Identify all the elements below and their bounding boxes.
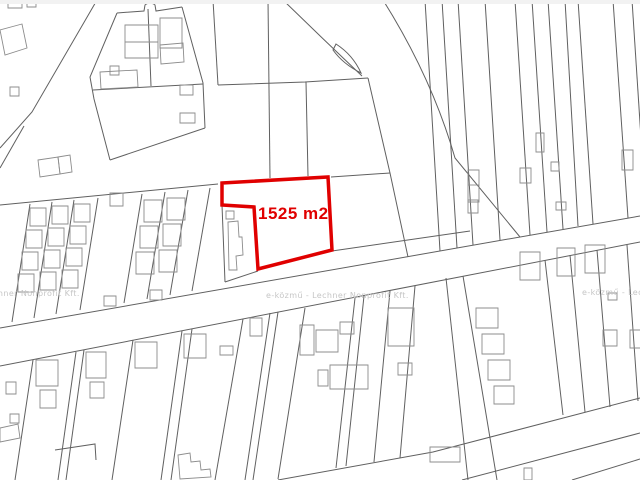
building-outline xyxy=(630,330,640,348)
building-outline xyxy=(26,230,42,248)
building-outline xyxy=(220,346,233,355)
building-outline xyxy=(180,85,193,95)
building-outline xyxy=(482,334,504,354)
parcel-boundary-line xyxy=(0,242,640,366)
building-outline xyxy=(608,293,617,300)
parcel-boundary-line xyxy=(161,331,182,480)
parcel-boundary-line xyxy=(148,9,151,86)
parcel-boundary-line xyxy=(222,205,225,282)
parcel-boundary-line xyxy=(34,202,52,318)
parcel-boundary-line xyxy=(463,276,497,480)
parcel-boundary-line xyxy=(565,0,578,226)
building-outline xyxy=(58,155,72,174)
building-outline xyxy=(180,113,195,123)
parcel-boundary-line xyxy=(56,200,74,314)
building-outline xyxy=(52,206,68,224)
building-outline xyxy=(551,162,559,171)
parcel-boundary-line xyxy=(545,260,563,415)
parcel-boundary-line xyxy=(383,0,520,237)
building-outline xyxy=(110,193,123,206)
building-outline xyxy=(66,248,82,266)
parcel-boundary-line xyxy=(245,313,270,480)
parcel-boundary-line xyxy=(15,360,33,480)
building-outline xyxy=(184,334,206,358)
parcel-boundary-line xyxy=(58,352,76,480)
building-outline xyxy=(476,308,498,328)
building-outline xyxy=(86,352,106,378)
building-outline xyxy=(398,363,412,375)
parcel-boundary-line xyxy=(627,245,638,401)
building-outline xyxy=(10,414,19,423)
parcel-boundary-line xyxy=(446,278,468,480)
parcel-boundary-line xyxy=(66,350,84,480)
building-outline xyxy=(90,382,104,398)
parcel-boundary-line xyxy=(458,0,473,245)
parcel-boundary-line xyxy=(80,198,98,310)
building-outline xyxy=(144,200,162,222)
parcel-boundary-line xyxy=(570,255,585,412)
parcel-boundary-line xyxy=(578,0,593,224)
parcel-boundary-line xyxy=(613,0,628,218)
building-outline xyxy=(70,226,86,244)
building-outline xyxy=(30,208,46,226)
building-outline xyxy=(74,204,90,222)
building-outline xyxy=(18,274,34,292)
building-outline xyxy=(494,386,514,404)
parcel-boundary-line xyxy=(306,82,308,176)
parcel-boundary-line xyxy=(333,44,361,73)
parcel-boundary-line xyxy=(462,433,640,480)
building-outline xyxy=(104,296,116,306)
building-outline xyxy=(150,290,162,300)
building-outline xyxy=(226,211,234,219)
parcel-boundary-line xyxy=(400,286,415,458)
parcel-boundary-line xyxy=(336,298,355,468)
parcel-boundary-line xyxy=(213,0,218,85)
building-outline xyxy=(557,248,575,276)
building-outline xyxy=(10,87,19,96)
parcel-boundary-line xyxy=(90,13,117,160)
parcel-boundary-line xyxy=(12,204,30,322)
building-outline xyxy=(110,66,119,75)
building-outline xyxy=(135,342,157,368)
parcel-boundary-line xyxy=(0,0,97,148)
building-outline xyxy=(330,365,368,389)
building-outline xyxy=(0,424,20,442)
building-outline xyxy=(38,157,60,177)
building-outline xyxy=(0,24,27,55)
building-outline xyxy=(36,360,58,386)
building-outline xyxy=(62,270,78,288)
parcel-boundary-line xyxy=(182,7,205,128)
building-outline xyxy=(250,318,262,336)
building-outline xyxy=(316,330,338,352)
parcel-boundary-line xyxy=(515,0,530,235)
building-outline xyxy=(536,133,544,152)
parcel-boundary-line xyxy=(225,271,258,282)
building-outline xyxy=(167,198,185,220)
parcel-boundary-line xyxy=(253,312,278,480)
building-outline xyxy=(524,468,532,480)
parcel-boundary-line xyxy=(218,78,368,85)
parcel-boundary-line xyxy=(192,188,210,291)
building-outline xyxy=(160,43,184,64)
parcel-boundary-line xyxy=(572,459,640,480)
parcel-boundary-line xyxy=(597,250,610,407)
building-outline xyxy=(488,360,510,380)
building-outline xyxy=(44,250,60,268)
parcel-boundary-line xyxy=(268,0,270,178)
building-outline xyxy=(40,272,56,290)
building-outline xyxy=(228,221,243,270)
building-outline xyxy=(125,25,158,58)
building-outline xyxy=(6,382,16,394)
building-outline xyxy=(40,390,56,408)
parcel-boundary-line xyxy=(215,319,243,480)
parcel-boundary-line xyxy=(548,0,563,229)
building-outline xyxy=(22,252,38,270)
parcel-boundary-line xyxy=(171,329,192,480)
parcel-boundary-line xyxy=(632,0,640,215)
building-outline xyxy=(520,252,540,280)
parcel-boundary-line xyxy=(278,308,305,479)
building-outline xyxy=(178,453,211,479)
parcel-boundary-line xyxy=(112,340,133,480)
parcel-boundary-line xyxy=(117,3,182,13)
parcel-boundary-line xyxy=(278,398,640,480)
cadastral-map-viewport[interactable]: e-közmű - Lechner Nonprofit Kft. e-közmű… xyxy=(0,0,640,480)
building-outline xyxy=(163,224,181,246)
building-outline xyxy=(140,226,158,248)
parcel-boundary-line xyxy=(368,78,408,257)
building-outline xyxy=(48,228,64,246)
parcel-boundary-line xyxy=(346,296,364,466)
parcel-boundary-line xyxy=(331,173,390,177)
parcel-boundary-line xyxy=(283,0,362,76)
parcel-boundary-line xyxy=(110,128,205,160)
parcel-boundary-line xyxy=(425,0,440,251)
parcel-boundary-line xyxy=(332,231,470,251)
map-edge-band xyxy=(0,0,640,4)
parcel-boundary-line xyxy=(532,0,547,232)
parcel-boundary-line xyxy=(0,126,24,168)
parcel-boundary-line xyxy=(124,194,142,303)
cadastral-map-canvas[interactable] xyxy=(0,0,640,480)
building-outline xyxy=(318,370,328,386)
